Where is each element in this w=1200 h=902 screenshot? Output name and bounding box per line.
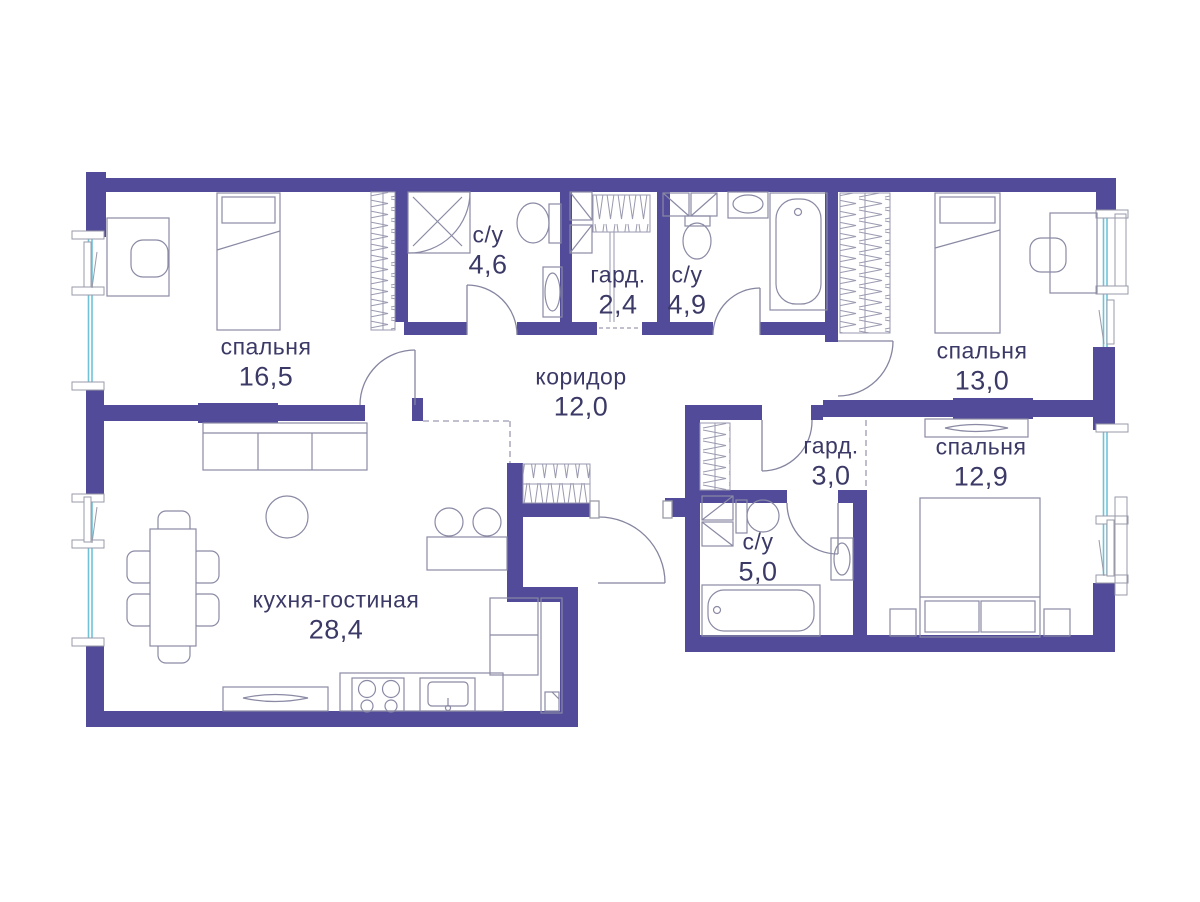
desk <box>107 218 169 296</box>
floor-plan-drawing <box>0 0 1200 902</box>
toilet-tank <box>685 216 710 226</box>
furniture-bedroom-1 <box>107 193 280 330</box>
wall-pillar-top-right <box>1096 178 1116 215</box>
wall-corridor-north-d <box>760 322 838 335</box>
sink <box>543 267 562 317</box>
dining-table <box>150 529 196 646</box>
wall-pillar-right-mid <box>1093 347 1115 430</box>
wall-top <box>105 178 1115 192</box>
furniture-bathroom-3 <box>702 496 853 636</box>
single-bed <box>217 193 280 330</box>
wall-entry-west <box>507 503 597 517</box>
door-wardrobe2 <box>762 420 812 471</box>
toilet-bowl <box>683 223 711 259</box>
single-bed <box>935 193 1000 333</box>
nightstand <box>1044 609 1070 636</box>
wall-corridor-west <box>507 463 523 602</box>
wall-bath3-bedroom3 <box>853 490 867 652</box>
furniture <box>107 192 1097 713</box>
wall-pillar-top-left <box>86 172 106 237</box>
bathtub <box>770 193 827 310</box>
wall-right-wing-west <box>685 405 700 652</box>
furniture-kitchen-living <box>127 423 562 713</box>
window-glazing <box>89 215 1108 646</box>
floor-plan-canvas: спальня 16,5 с/у 4,6 гард. 2,4 с/у 4,9 с… <box>0 0 1200 902</box>
wall-pier-bedroom3 <box>953 398 1033 419</box>
kitchen-counter <box>340 673 503 711</box>
wall-corridor-north-b <box>517 322 597 335</box>
wall-corridor-north-a <box>404 322 467 335</box>
bathtub <box>702 585 820 636</box>
sofa <box>203 423 367 470</box>
walls <box>86 172 1116 727</box>
wall-kitchen-column <box>560 592 578 727</box>
wall-bedroom1-east <box>395 192 408 322</box>
entry-door <box>590 501 672 583</box>
tv-console <box>223 687 328 711</box>
toilet-bowl <box>517 203 549 243</box>
door-bedroom2 <box>838 341 893 396</box>
tv-console <box>925 419 1028 437</box>
wall-pier-living <box>198 403 278 423</box>
wall-bedroom1-door-jamb <box>412 398 423 421</box>
furniture-bathroom-2 <box>663 192 827 310</box>
rug <box>266 496 308 538</box>
wall-wardrobe2-north-b <box>811 405 823 420</box>
furniture-wardrobe-1 <box>570 192 592 253</box>
desk <box>1050 213 1097 293</box>
sink <box>728 192 768 218</box>
toilet-tank <box>549 204 561 243</box>
wall-corridor-north-c <box>642 322 713 335</box>
pillow <box>940 197 995 223</box>
furniture-bedroom-3 <box>890 419 1070 637</box>
pillow <box>981 601 1035 632</box>
fridge-icon <box>545 692 559 711</box>
hanger-rail-wardrobe1 <box>593 195 650 232</box>
door-bathroom3 <box>787 503 838 554</box>
tv <box>945 425 1008 432</box>
wall-wardrobe2-north-a <box>685 405 762 420</box>
door-bedroom1 <box>360 350 415 405</box>
zone-dashed-lines <box>423 328 866 490</box>
chair <box>131 240 168 277</box>
wall-pillar-bottom-right <box>1093 583 1115 652</box>
tv <box>243 695 308 702</box>
chair <box>1030 238 1066 272</box>
door-bathroom2 <box>713 288 760 335</box>
kitchen-island <box>427 537 507 570</box>
double-bed <box>920 498 1040 637</box>
nightstand <box>890 609 916 636</box>
bar-stool <box>473 508 501 536</box>
pillow <box>925 601 979 632</box>
toilet-bowl <box>747 500 779 532</box>
pillow <box>222 197 275 223</box>
counter-run <box>490 598 538 675</box>
window-sill-ticks <box>72 210 1128 646</box>
toilet-tank <box>736 500 747 533</box>
wall-bottom-kitchen <box>95 711 578 727</box>
door-bathroom1 <box>467 285 517 335</box>
furniture-bedroom-2 <box>935 193 1097 333</box>
bar-stool <box>435 508 463 536</box>
furniture-bathroom-1 <box>408 192 562 317</box>
windows <box>72 210 1128 646</box>
